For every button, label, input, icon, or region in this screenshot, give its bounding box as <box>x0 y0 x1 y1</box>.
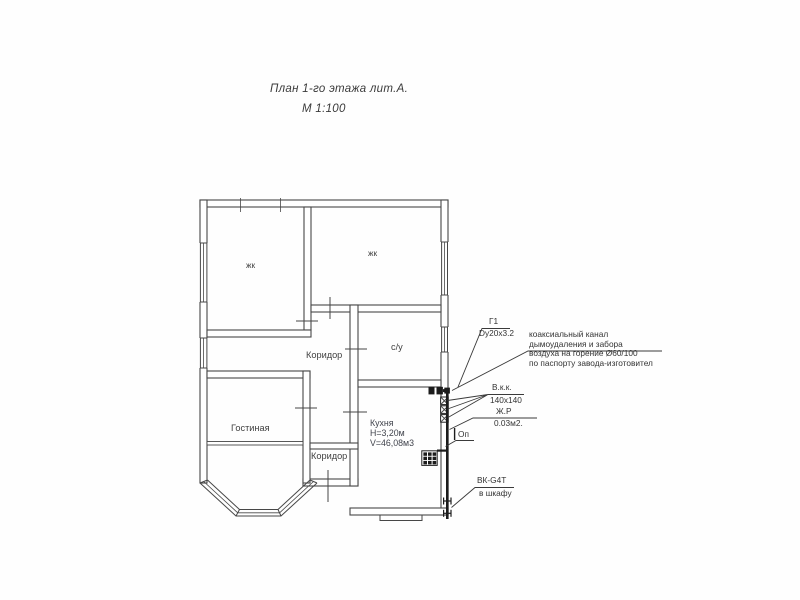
gas-riser-spec: Dy20x3.2 <box>479 329 514 339</box>
window-left-bedroom1 <box>199 243 208 302</box>
room-label-kitchen: Кухня Н=3,20м V=46,08м3 <box>370 419 414 448</box>
wall-top <box>200 200 448 207</box>
room-label-hall: Коридор <box>311 451 347 461</box>
room-label-corridor: Коридор <box>306 350 342 360</box>
boiler-icon <box>437 387 443 395</box>
bay-window <box>200 480 317 516</box>
room-label-bathroom: с/у <box>391 342 403 352</box>
wall-between-bedrooms <box>304 207 311 330</box>
meter-location: в шкафу <box>479 489 512 499</box>
vent-channel-size: 140x140 <box>490 396 522 406</box>
grille-label: Ж.Р <box>496 407 512 417</box>
wall-corridor-right <box>350 305 358 486</box>
floor-plan-sheet: План 1-го этажа лит.А. М 1:100 жк жк Кор… <box>0 0 800 600</box>
window-right-bathroom <box>440 327 449 352</box>
wall-livingroom-top <box>207 371 310 378</box>
wall-kitchen-top <box>358 380 441 387</box>
sheet-scale: М 1:100 <box>302 103 346 115</box>
gas-riser-label: Г1 <box>489 317 498 327</box>
vent-channel-label: В.к.к. <box>492 383 512 393</box>
wall-livingroom-right <box>303 371 310 483</box>
window-right-bedroom2 <box>440 242 449 295</box>
wall-hall-top <box>310 443 358 449</box>
drop-label: Оп <box>458 430 469 440</box>
bay-threshold-line <box>207 442 303 446</box>
coax-note: коаксиальный канал дымоудаления и забора… <box>529 330 653 368</box>
leader-drop <box>446 441 475 447</box>
room-label-bedroom2: жк <box>368 249 377 258</box>
kitchen-volume: V=46,08м3 <box>370 439 414 449</box>
grille-size: 0.03м2. <box>494 419 523 429</box>
boiler-icon <box>429 387 435 395</box>
sheet-title: План 1-го этажа лит.А. <box>270 83 408 95</box>
meter-label: ВК-G4T <box>477 476 506 486</box>
wall-kitchen-bottom <box>350 508 448 515</box>
room-label-livingroom: Гостиная <box>231 423 270 433</box>
room-label-bedroom1: жк <box>246 261 255 270</box>
window-left-corridor <box>199 338 208 368</box>
wall-bedroom1-corridor <box>207 330 311 337</box>
coax-note-line4: по паспорту завода-изготовител <box>529 359 653 369</box>
porch-step <box>380 515 422 521</box>
gas-equipment <box>422 387 455 519</box>
gas-stove-icon <box>422 451 437 466</box>
